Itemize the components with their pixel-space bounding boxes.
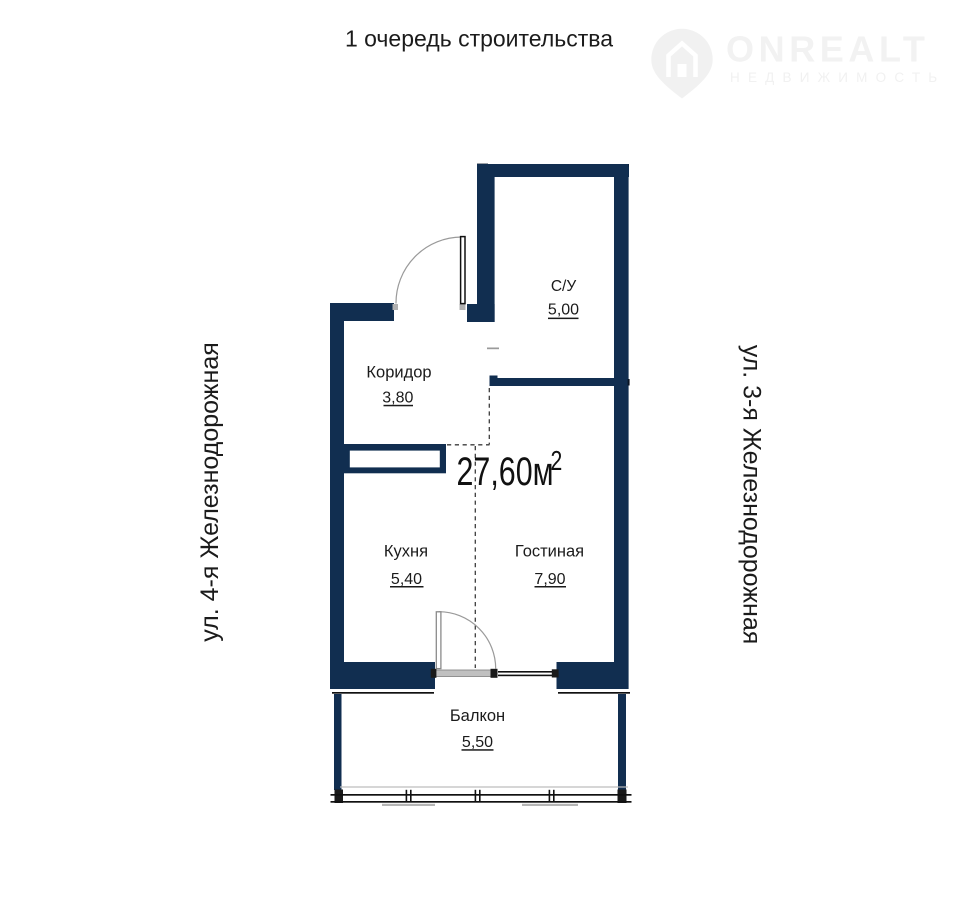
- svg-text:Балкон: Балкон: [450, 707, 505, 725]
- svg-text:27,60м: 27,60м: [457, 450, 554, 494]
- svg-text:2: 2: [551, 446, 563, 476]
- svg-text:7,90: 7,90: [534, 571, 565, 588]
- svg-text:Кухня: Кухня: [384, 542, 428, 560]
- svg-text:С/У: С/У: [551, 278, 577, 295]
- svg-text:ул. 4-я Железнодорожная: ул. 4-я Железнодорожная: [196, 342, 224, 642]
- svg-text:1 очередь строительства: 1 очередь строительства: [345, 26, 613, 52]
- svg-text:5,50: 5,50: [462, 734, 493, 751]
- svg-text:5,40: 5,40: [391, 571, 422, 588]
- svg-text:3,80: 3,80: [382, 390, 413, 407]
- svg-text:Коридор: Коридор: [366, 363, 431, 381]
- svg-text:5,00: 5,00: [548, 302, 579, 319]
- svg-text:ул. 3-я Железнодорожная: ул. 3-я Железнодорожная: [738, 345, 766, 645]
- svg-text:Гостиная: Гостиная: [515, 542, 584, 560]
- svg-text:ONREALT: ONREALT: [726, 29, 930, 70]
- svg-text:НЕДВИЖИМОСТЬ: НЕДВИЖИМОСТЬ: [730, 70, 945, 85]
